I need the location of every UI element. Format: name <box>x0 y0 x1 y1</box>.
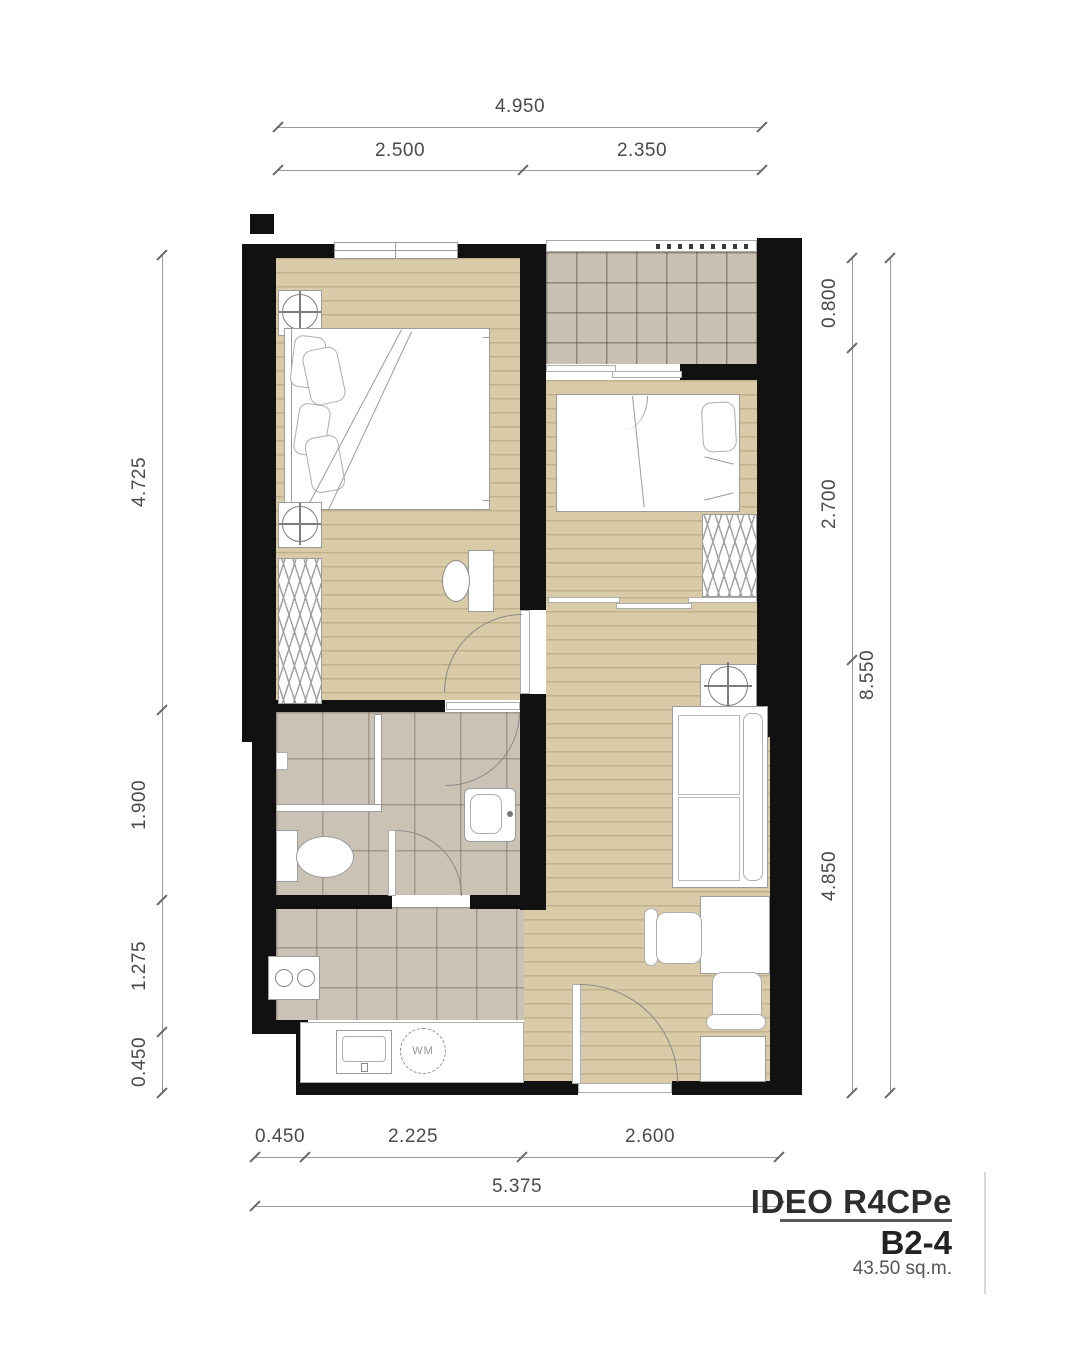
wall-divider-lower <box>520 694 546 910</box>
bedroom2-slider-panel-3 <box>688 597 757 603</box>
bathroom-door-leaf-top <box>446 702 520 710</box>
bed-frame-tick-bottom <box>483 500 489 501</box>
sofa <box>672 706 768 888</box>
entry-cabinet <box>700 1036 766 1082</box>
dim-label-top-total: 4.950 <box>475 96 565 118</box>
balcony-slider-panel-2 <box>612 371 682 378</box>
dim-line-right-segments <box>852 258 853 1093</box>
dim-label-left-seg4: 0.450 <box>129 1017 151 1107</box>
wall-balcony-bottom <box>680 364 757 380</box>
shower-head-icon <box>276 752 288 770</box>
wall-bathroom-bottom-left <box>252 895 392 909</box>
burner-icon <box>297 969 315 987</box>
dim-label-bottom-seg1: 0.450 <box>235 1126 325 1148</box>
unit-area: 43.50 sq.m. <box>700 1258 952 1280</box>
dim-label-left-seg2: 1.900 <box>129 760 151 850</box>
dim-label-right-seg3: 4.850 <box>819 831 841 921</box>
dim-line-left <box>162 255 163 1093</box>
bed-frame-tick-top <box>483 337 489 338</box>
dining-chair-seat <box>656 912 702 964</box>
title-underline <box>780 1219 952 1222</box>
floor-lamp-icon <box>708 666 748 706</box>
washing-machine: WM <box>400 1028 446 1074</box>
sofa-cushion <box>678 797 740 881</box>
washing-machine-label: WM <box>412 1045 434 1057</box>
dim-label-right-total: 8.550 <box>857 630 879 720</box>
shower-glass-horizontal <box>276 804 382 812</box>
bedroom1-tv-cabinet <box>468 550 494 612</box>
pillow <box>701 401 738 453</box>
project-title: IDEO R4CPe <box>700 1183 952 1221</box>
bedroom1-wardrobe <box>278 558 322 704</box>
dim-line-top-total <box>278 127 762 128</box>
dim-label-bottom-seg2: 2.225 <box>368 1126 458 1148</box>
bathroom-door-leaf-bottom <box>388 830 396 896</box>
balcony-railing <box>546 240 757 252</box>
dining-table <box>700 896 770 974</box>
wall-top-pillar-bump <box>250 214 274 234</box>
table-lamp-icon <box>282 294 318 330</box>
dim-label-left-seg1: 4.725 <box>129 437 151 527</box>
wall-bathroom-bottom-right <box>470 895 546 909</box>
bedroom2-slider-panel-2 <box>616 603 692 609</box>
sofa-backrest <box>743 713 763 881</box>
shower-glass-vertical <box>374 714 382 812</box>
toilet-bowl-icon <box>296 836 354 878</box>
wall-right-lower <box>770 737 802 1095</box>
burner-icon <box>275 969 293 987</box>
dim-label-top-seg2: 2.350 <box>597 140 687 162</box>
floor-plan-canvas: WM 4.950 2.500 2.350 4.725 1.900 1.275 0… <box>0 0 1080 1350</box>
toilet-cistern <box>276 830 298 882</box>
cooktop <box>268 956 320 1000</box>
wall-left <box>242 244 276 742</box>
unit-type: B2-4 <box>700 1224 952 1262</box>
dim-label-bottom-total: 5.375 <box>472 1176 562 1198</box>
bedroom2-slider-panel-1 <box>548 597 620 603</box>
wall-right-upper <box>757 238 802 737</box>
washbasin-bowl <box>470 794 502 834</box>
balcony-slider-panel-1 <box>546 365 616 372</box>
railing-louver-dashes <box>656 244 754 249</box>
table-lamp-icon <box>282 506 318 542</box>
dim-label-right-seg2: 2.700 <box>819 459 841 549</box>
bedroom1-window <box>334 242 458 259</box>
entry-door-threshold <box>578 1083 672 1093</box>
dim-label-left-seg3: 1.275 <box>129 921 151 1011</box>
washbasin <box>464 788 516 842</box>
dining-chair-back <box>706 1014 766 1030</box>
bedroom2-wardrobe <box>702 514 757 597</box>
dim-line-right-total <box>890 258 891 1093</box>
kitchen-sink <box>336 1030 392 1074</box>
dim-line-bottom-segments <box>255 1157 779 1158</box>
wall-bottom-left <box>296 1081 578 1095</box>
wall-divider-upper <box>520 244 546 610</box>
sink-basin <box>342 1036 386 1062</box>
faucet-dot <box>507 811 513 817</box>
bedroom1-tv-icon <box>442 560 470 602</box>
title-block-edge-rule <box>984 1172 986 1294</box>
dim-label-top-seg1: 2.500 <box>355 140 445 162</box>
sink-faucet-icon <box>361 1063 368 1072</box>
window-mullion <box>395 243 396 258</box>
dim-label-bottom-seg3: 2.600 <box>605 1126 695 1148</box>
balcony-floor <box>546 252 757 364</box>
sofa-cushion <box>678 715 740 795</box>
dim-label-right-seg1: 0.800 <box>819 258 841 348</box>
